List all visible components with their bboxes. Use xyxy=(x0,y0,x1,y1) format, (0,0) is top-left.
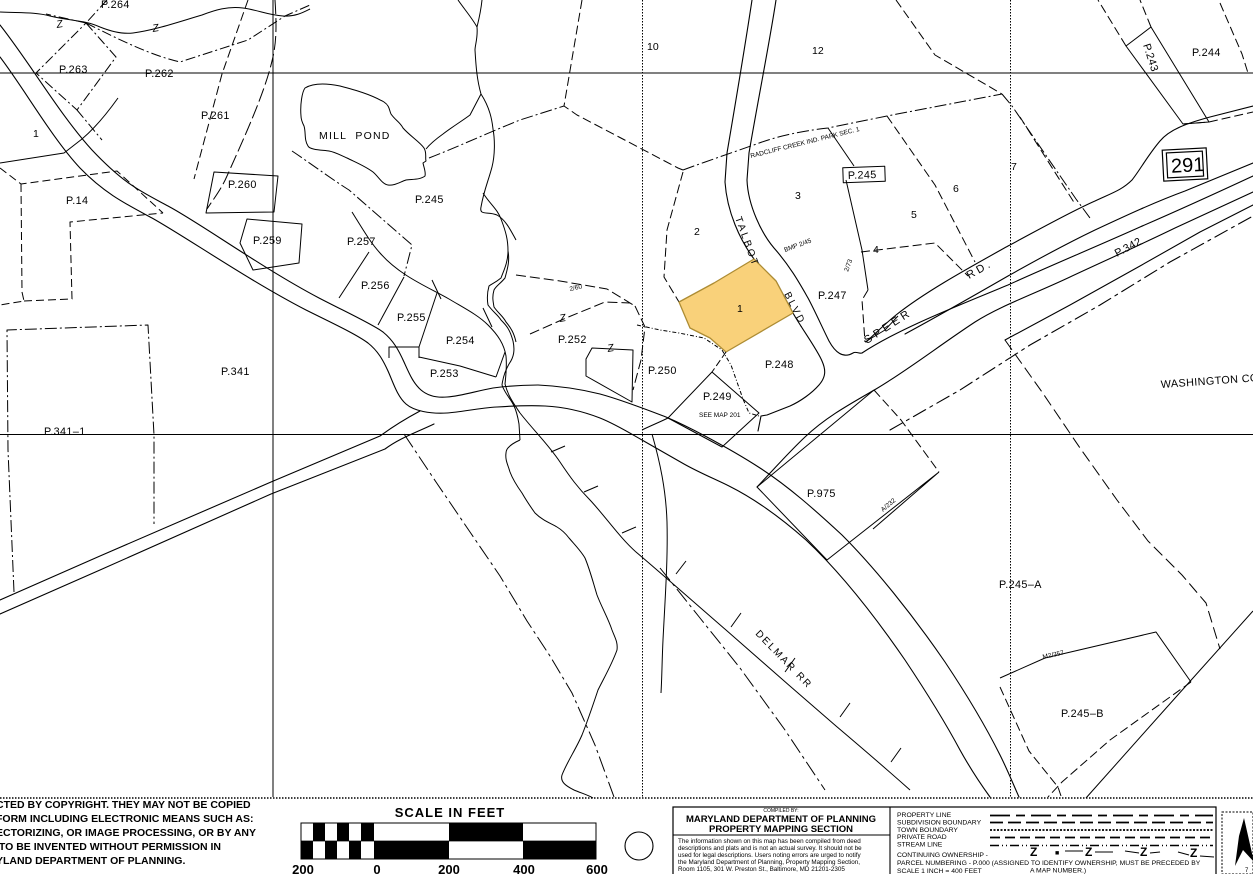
svg-text:12: 12 xyxy=(812,45,824,57)
svg-text:STREAM LINE: STREAM LINE xyxy=(897,842,943,849)
svg-text:Z: Z xyxy=(1140,845,1147,859)
svg-text:3: 3 xyxy=(795,190,801,202)
svg-text:P.249: P.249 xyxy=(703,391,732,403)
svg-text:P.245: P.245 xyxy=(848,169,877,182)
svg-text:P.14: P.14 xyxy=(66,195,88,207)
svg-text:ECTORIZING, OR IMAGE PROCESSIN: ECTORIZING, OR IMAGE PROCESSING, OR BY A… xyxy=(0,827,256,839)
svg-text:P.248: P.248 xyxy=(765,359,794,371)
svg-text:0: 0 xyxy=(373,862,380,874)
svg-text:1: 1 xyxy=(33,128,39,140)
svg-text:PARCEL NUMBERING - P.000 (ASSI: PARCEL NUMBERING - P.000 (ASSIGNED TO ID… xyxy=(897,860,1201,867)
svg-text:Z: Z xyxy=(1030,845,1037,859)
svg-text:P.259: P.259 xyxy=(253,235,282,247)
svg-text:P.245: P.245 xyxy=(415,194,444,206)
svg-text:1: 1 xyxy=(737,303,743,315)
svg-text:CTED BY COPYRIGHT. THEY MAY NO: CTED BY COPYRIGHT. THEY MAY NOT BE COPIE… xyxy=(0,799,251,811)
svg-text:used for legal descriptions. U: used for legal descriptions. Users notin… xyxy=(678,852,862,859)
svg-text:TOWN BOUNDARY: TOWN BOUNDARY xyxy=(897,827,958,834)
svg-text:P.263: P.263 xyxy=(59,64,88,76)
svg-text:600: 600 xyxy=(586,862,608,874)
svg-text:P.975: P.975 xyxy=(807,488,836,500)
svg-text:P.257: P.257 xyxy=(347,236,376,248)
svg-text:200: 200 xyxy=(292,862,314,874)
svg-text:The information shown on this: The information shown on this map has be… xyxy=(678,838,861,845)
svg-text:P.245–B: P.245–B xyxy=(1061,708,1104,720)
svg-text:P.341: P.341 xyxy=(221,366,250,378)
svg-text:400: 400 xyxy=(513,862,535,874)
svg-text:Z: Z xyxy=(1085,845,1092,859)
svg-text:CONTINUING OWNERSHIP -: CONTINUING OWNERSHIP - xyxy=(897,852,988,859)
svg-text:6: 6 xyxy=(953,183,959,195)
svg-text:200: 200 xyxy=(438,862,460,874)
svg-text:P.244: P.244 xyxy=(1192,47,1221,59)
svg-text:PRIVATE ROAD: PRIVATE ROAD xyxy=(897,834,947,841)
svg-text:291: 291 xyxy=(1170,154,1204,178)
svg-text:P.250: P.250 xyxy=(648,365,677,377)
svg-text:SUBDIVISION BOUNDARY: SUBDIVISION BOUNDARY xyxy=(897,820,982,827)
svg-text:P.261: P.261 xyxy=(201,110,230,122)
svg-text:P.252: P.252 xyxy=(558,334,587,346)
svg-text:SEE MAP 201: SEE MAP 201 xyxy=(699,412,741,419)
svg-text:P.341–1: P.341–1 xyxy=(44,426,86,438)
svg-text:TO BE INVENTED WITHOUT PERMISS: TO BE INVENTED WITHOUT PERMISSION IN xyxy=(0,841,221,853)
svg-text:PROPERTY MAPPING SECTION: PROPERTY MAPPING SECTION xyxy=(709,824,853,835)
svg-text:P.247: P.247 xyxy=(818,290,847,302)
svg-text:P.260: P.260 xyxy=(228,179,257,191)
svg-text:SCALE IN FEET: SCALE IN FEET xyxy=(395,805,506,820)
svg-text:YLAND DEPARTMENT OF PLANNING.: YLAND DEPARTMENT OF PLANNING. xyxy=(0,855,185,867)
svg-text:descriptions and plats and is: descriptions and plats and is not an act… xyxy=(678,845,862,852)
svg-text:7: 7 xyxy=(1011,161,1017,173)
svg-text:MILL POND: MILL POND xyxy=(319,130,391,142)
svg-text:10: 10 xyxy=(647,41,659,53)
svg-text:2: 2 xyxy=(694,226,700,238)
svg-text:P.245–A: P.245–A xyxy=(999,579,1042,591)
svg-text:4: 4 xyxy=(873,244,879,256)
svg-text:PROPERTY LINE: PROPERTY LINE xyxy=(897,812,952,819)
svg-text:P.264: P.264 xyxy=(101,0,130,11)
svg-text:P.255: P.255 xyxy=(397,312,426,324)
svg-text:Room 1105, 301 W. Preston St.,: Room 1105, 301 W. Preston St., Baltimore… xyxy=(678,866,845,873)
svg-text:P.262: P.262 xyxy=(145,68,174,80)
svg-text:SCALE 1 INCH = 400 FEET: SCALE 1 INCH = 400 FEET xyxy=(897,868,982,874)
svg-text:the Maryland Department of Pla: the Maryland Department of Planning, Pro… xyxy=(678,859,860,866)
svg-text:P.253: P.253 xyxy=(430,368,459,380)
svg-text:A MAP NUMBER.): A MAP NUMBER.) xyxy=(1030,868,1086,874)
svg-text:■: ■ xyxy=(1055,850,1059,857)
svg-text:FORM INCLUDING ELECTRONIC MEAN: FORM INCLUDING ELECTRONIC MEANS SUCH AS: xyxy=(0,813,253,825)
svg-text:P.256: P.256 xyxy=(361,280,390,292)
svg-text:5: 5 xyxy=(911,209,917,221)
svg-text:P.254: P.254 xyxy=(446,335,475,347)
svg-text:Z: Z xyxy=(1190,846,1197,860)
